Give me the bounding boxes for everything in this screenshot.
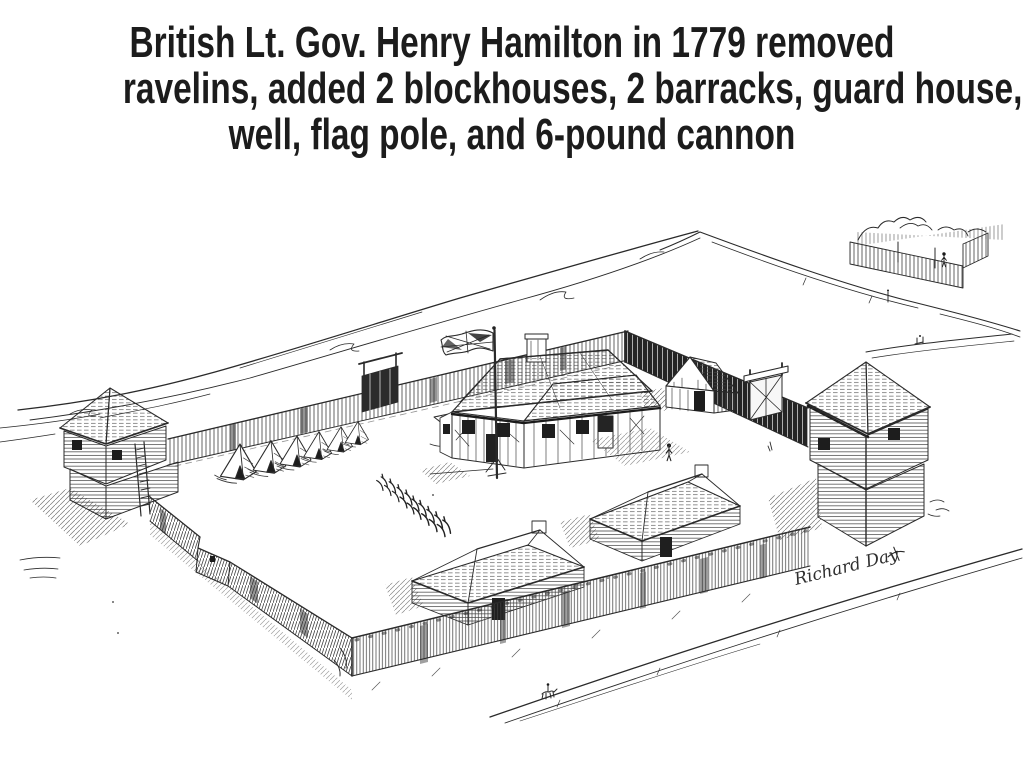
- union-jack-flag: [441, 330, 493, 355]
- slide-title: British Lt. Gov. Henry Hamilton in 1779 …: [123, 20, 901, 158]
- palisade-southwest-wall: [150, 497, 352, 700]
- slide-title-line-1: British Lt. Gov. Henry Hamilton in 1779 …: [123, 20, 901, 66]
- right-blockhouse: [768, 362, 949, 546]
- courtyard-scrub: [768, 442, 772, 451]
- presentation-slide: British Lt. Gov. Henry Hamilton in 1779 …: [0, 0, 1024, 768]
- orchard: [850, 217, 1005, 288]
- stacked-arms-row: [377, 474, 451, 536]
- slide-title-line-2: ravelins, added 2 blockhouses, 2 barrack…: [123, 66, 901, 112]
- fort-illustration: Richard Day: [0, 185, 1024, 768]
- main-gate: [744, 363, 788, 420]
- left-blockhouse: [20, 388, 178, 578]
- slide-title-line-3: well, flag pole, and 6-pound cannon: [123, 112, 901, 158]
- side-road: [866, 334, 1014, 358]
- barracks-far: [560, 465, 740, 561]
